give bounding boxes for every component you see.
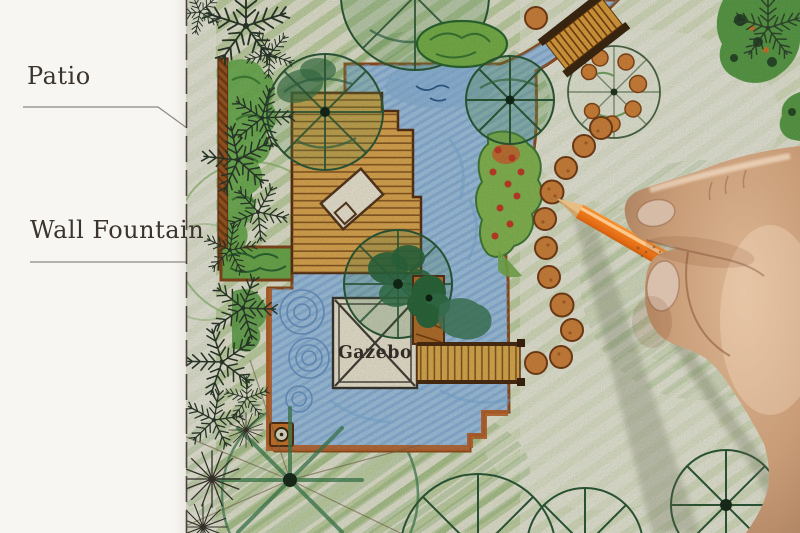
paper-margin: Patio Wall Fountain: [0, 0, 204, 533]
patio-label: Patio: [27, 62, 91, 90]
wall-fountain-label: Wall Fountain: [30, 216, 204, 244]
landscape-plan-photo: Gazebo: [0, 0, 800, 533]
